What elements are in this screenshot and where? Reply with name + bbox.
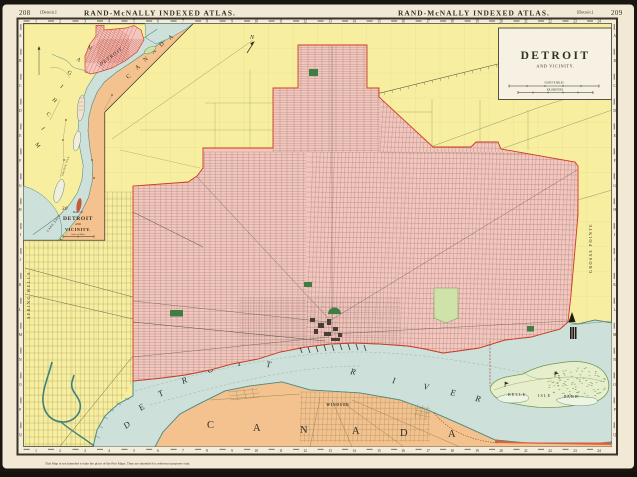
- svg-text:4: 4: [108, 20, 110, 24]
- svg-text:D: D: [613, 109, 616, 113]
- svg-text:N: N: [613, 358, 616, 362]
- svg-text:STATUTE MILES: STATUTE MILES: [544, 82, 564, 85]
- svg-text:13: 13: [328, 449, 332, 453]
- svg-text:13: 13: [328, 20, 332, 24]
- svg-text:15: 15: [377, 449, 381, 453]
- svg-text:K: K: [613, 283, 616, 287]
- svg-text:A: A: [253, 423, 261, 434]
- svg-text:Q: Q: [19, 433, 22, 437]
- svg-text:F: F: [19, 159, 21, 163]
- svg-text:4: 4: [108, 449, 110, 453]
- svg-text:30: 30: [62, 207, 68, 212]
- svg-text:17: 17: [426, 20, 430, 24]
- svg-text:22: 22: [548, 449, 552, 453]
- svg-text:14: 14: [352, 20, 356, 24]
- svg-text:5: 5: [133, 20, 135, 24]
- svg-text:20: 20: [499, 20, 503, 24]
- svg-text:RAND-McNALLY INDEXED ATLAS.: RAND-McNALLY INDEXED ATLAS.: [84, 9, 236, 18]
- svg-text:ISLE: ISLE: [538, 393, 551, 398]
- svg-text:P: P: [614, 408, 616, 412]
- svg-text:17: 17: [426, 449, 430, 453]
- svg-text:A: A: [19, 34, 22, 38]
- svg-text:11: 11: [279, 20, 283, 24]
- svg-text:208: 208: [19, 10, 31, 17]
- svg-text:Q: Q: [613, 433, 616, 437]
- svg-text:A: A: [448, 429, 456, 440]
- svg-text:18: 18: [450, 20, 454, 24]
- svg-text:14: 14: [352, 449, 356, 453]
- svg-text:This Map is not intended to ta: This Map is not intended to take the pla…: [45, 462, 190, 466]
- svg-text:2: 2: [59, 20, 61, 24]
- svg-text:RAND-McNALLY INDEXED ATLAS.: RAND-McNALLY INDEXED ATLAS.: [398, 9, 550, 18]
- svg-text:1: 1: [35, 449, 37, 453]
- svg-text:23: 23: [573, 449, 577, 453]
- svg-text:6: 6: [157, 449, 159, 453]
- svg-text:5: 5: [133, 449, 135, 453]
- svg-text:6: 6: [157, 20, 159, 24]
- svg-text:MAP OF: MAP OF: [73, 211, 84, 214]
- svg-text:AND VICINITY.: AND VICINITY.: [536, 64, 574, 69]
- svg-text:3: 3: [84, 449, 86, 453]
- svg-text:[Detroit.]: [Detroit.]: [40, 10, 57, 15]
- svg-text:N: N: [19, 358, 22, 362]
- svg-text:19: 19: [475, 20, 479, 24]
- svg-text:GROSSE POINTE: GROSSE POINTE: [588, 223, 593, 273]
- svg-text:L: L: [614, 308, 616, 312]
- svg-text:19: 19: [475, 449, 479, 453]
- svg-text:209: 209: [611, 10, 623, 17]
- svg-text:10: 10: [254, 20, 258, 24]
- svg-text:D: D: [19, 109, 22, 113]
- svg-text:F: F: [614, 159, 616, 163]
- svg-text:O: O: [613, 383, 616, 387]
- svg-text:16: 16: [401, 20, 405, 24]
- svg-text:15: 15: [377, 20, 381, 24]
- svg-text:16: 16: [401, 449, 405, 453]
- svg-text:N: N: [300, 425, 308, 436]
- svg-text:7: 7: [182, 449, 184, 453]
- svg-text:21: 21: [524, 20, 528, 24]
- svg-text:[Detroit.]: [Detroit.]: [577, 10, 594, 15]
- svg-text:BELLE: BELLE: [508, 392, 526, 397]
- svg-text:C: C: [207, 420, 214, 431]
- svg-text:P: P: [19, 408, 21, 412]
- svg-text:8: 8: [206, 20, 208, 24]
- svg-text:23: 23: [573, 20, 577, 24]
- svg-text:9: 9: [231, 20, 233, 24]
- svg-text:PARK: PARK: [564, 394, 579, 399]
- svg-text:21: 21: [524, 449, 528, 453]
- svg-text:22: 22: [548, 20, 552, 24]
- svg-text:H: H: [613, 208, 616, 212]
- svg-text:1: 1: [35, 20, 37, 24]
- svg-text:7: 7: [182, 20, 184, 24]
- svg-text:10: 10: [254, 449, 258, 453]
- svg-text:VICINITY.: VICINITY.: [65, 227, 91, 232]
- svg-text:AND: AND: [75, 223, 81, 226]
- svg-text:11: 11: [279, 449, 283, 453]
- svg-text:12: 12: [303, 449, 307, 453]
- svg-text:DETROIT: DETROIT: [521, 50, 591, 62]
- svg-text:12: 12: [303, 20, 307, 24]
- svg-text:9: 9: [231, 449, 233, 453]
- svg-text:D: D: [400, 428, 408, 439]
- svg-text:SPRING WELLS: SPRING WELLS: [26, 271, 31, 319]
- svg-text:A: A: [352, 426, 360, 437]
- svg-text:24: 24: [597, 449, 601, 453]
- svg-text:3: 3: [84, 20, 86, 24]
- svg-text:K: K: [19, 283, 22, 287]
- svg-text:8: 8: [206, 449, 208, 453]
- svg-text:O: O: [19, 383, 22, 387]
- svg-text:L: L: [19, 308, 21, 312]
- svg-text:24: 24: [597, 20, 601, 24]
- svg-text:G: G: [613, 184, 616, 188]
- svg-text:2: 2: [59, 449, 61, 453]
- svg-text:DETROIT: DETROIT: [63, 216, 93, 222]
- svg-text:KILOMETERS: KILOMETERS: [547, 89, 564, 92]
- svg-text:H: H: [19, 208, 22, 212]
- svg-text:18: 18: [450, 449, 454, 453]
- svg-text:A: A: [613, 34, 616, 38]
- svg-text:20: 20: [499, 449, 503, 453]
- svg-text:G: G: [19, 184, 22, 188]
